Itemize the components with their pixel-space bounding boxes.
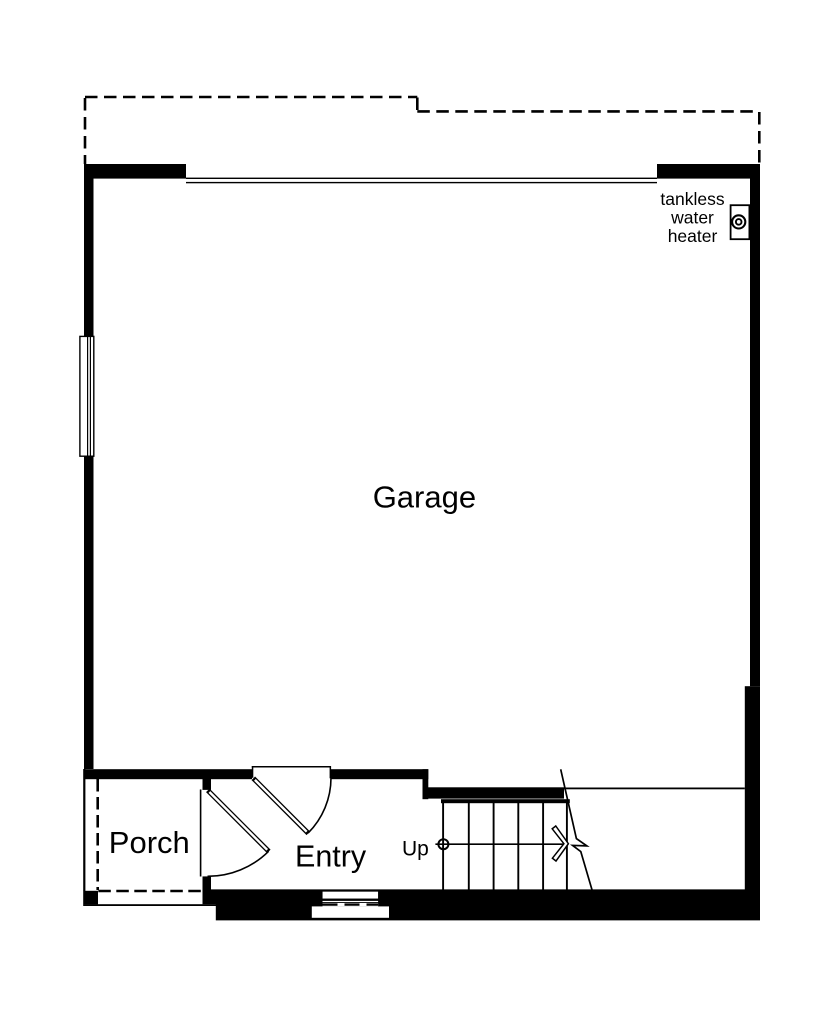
svg-text:heater: heater [668, 226, 718, 246]
svg-text:water: water [670, 207, 714, 227]
svg-text:Garage: Garage [373, 480, 476, 515]
svg-text:Entry: Entry [295, 839, 367, 873]
svg-text:Up: Up [402, 838, 429, 861]
svg-text:Porch: Porch [109, 825, 190, 860]
svg-text:tankless: tankless [660, 189, 724, 209]
